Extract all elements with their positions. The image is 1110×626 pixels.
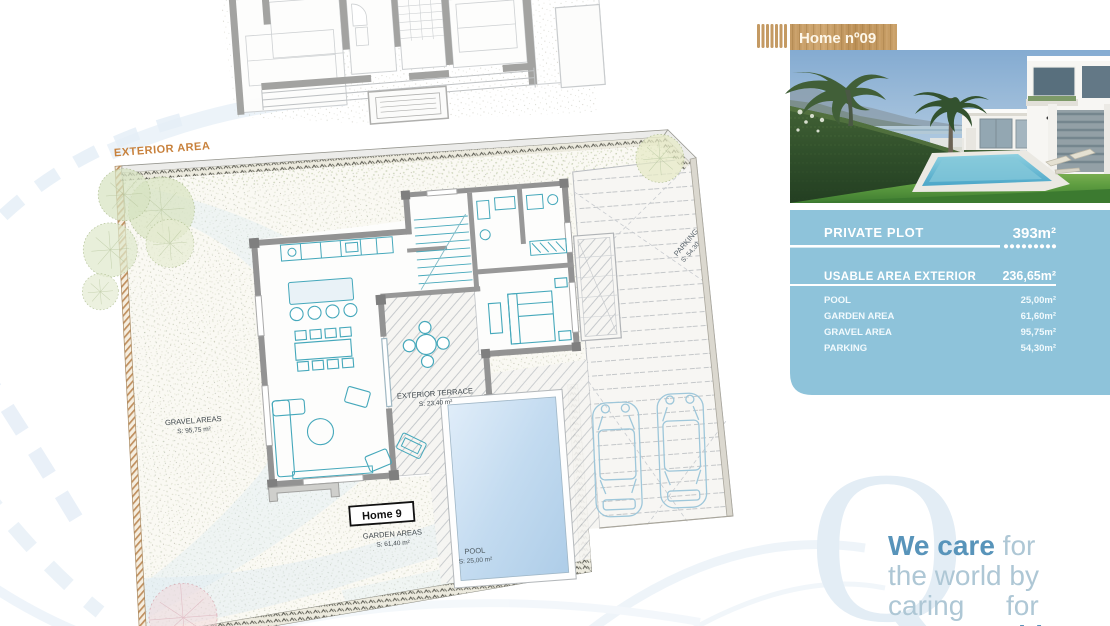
svg-text:the world by: the world by (888, 560, 1039, 591)
svg-text:236,65m²: 236,65m² (1002, 269, 1056, 283)
svg-text:GRAVEL AREA: GRAVEL AREA (824, 327, 892, 338)
svg-text:PARKING: PARKING (824, 343, 867, 354)
svg-text:GARDEN AREA: GARDEN AREA (824, 311, 895, 322)
svg-text:world: world (967, 620, 1043, 626)
svg-text:We care for: We care for (888, 530, 1035, 561)
svg-text:61,60m²: 61,60m² (1021, 311, 1056, 322)
svg-text:caringfor: caringfor (888, 590, 1039, 621)
svg-text:USABLE AREA EXTERIOR: USABLE AREA EXTERIOR (824, 271, 976, 283)
svg-text:POOL: POOL (464, 546, 485, 557)
svg-text:PRIVATE PLOT: PRIVATE PLOT (824, 225, 924, 240)
svg-text:95,75m²: 95,75m² (1021, 327, 1056, 338)
svg-text:25,00m²: 25,00m² (1021, 295, 1056, 306)
svg-text:our: our (888, 620, 928, 626)
svg-text:54,30m²: 54,30m² (1021, 343, 1056, 354)
svg-text:Home nº09: Home nº09 (799, 30, 876, 47)
svg-text:POOL: POOL (824, 295, 851, 306)
svg-text:393m²: 393m² (1013, 225, 1056, 242)
